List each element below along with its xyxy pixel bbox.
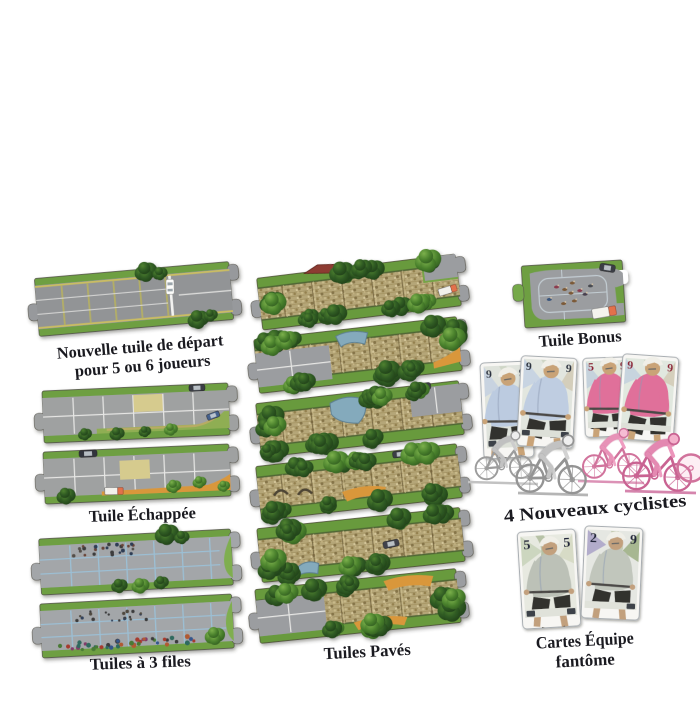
svg-text:Tuiles à 3 files: Tuiles à 3 files bbox=[90, 651, 192, 674]
svg-text:fantôme: fantôme bbox=[555, 649, 615, 671]
svg-text:5: 5 bbox=[563, 536, 571, 551]
svg-text:9: 9 bbox=[525, 359, 532, 373]
svg-text:2: 2 bbox=[590, 531, 598, 546]
svg-text:9: 9 bbox=[565, 361, 572, 375]
svg-text:9: 9 bbox=[630, 533, 638, 548]
svg-text:5: 5 bbox=[588, 359, 594, 373]
svg-text:9: 9 bbox=[667, 360, 674, 374]
svg-text:5: 5 bbox=[523, 538, 531, 553]
svg-text:4 Nouveaux cyclistes: 4 Nouveaux cyclistes bbox=[503, 490, 687, 526]
svg-text:Tuile Échappée: Tuile Échappée bbox=[89, 503, 197, 526]
svg-text:9: 9 bbox=[486, 367, 493, 381]
svg-text:9: 9 bbox=[627, 357, 634, 371]
svg-text:Tuiles Pavés: Tuiles Pavés bbox=[323, 640, 411, 664]
svg-text:Cartes Équipe: Cartes Équipe bbox=[535, 628, 634, 652]
svg-text:Tuile Bonus: Tuile Bonus bbox=[538, 326, 623, 351]
